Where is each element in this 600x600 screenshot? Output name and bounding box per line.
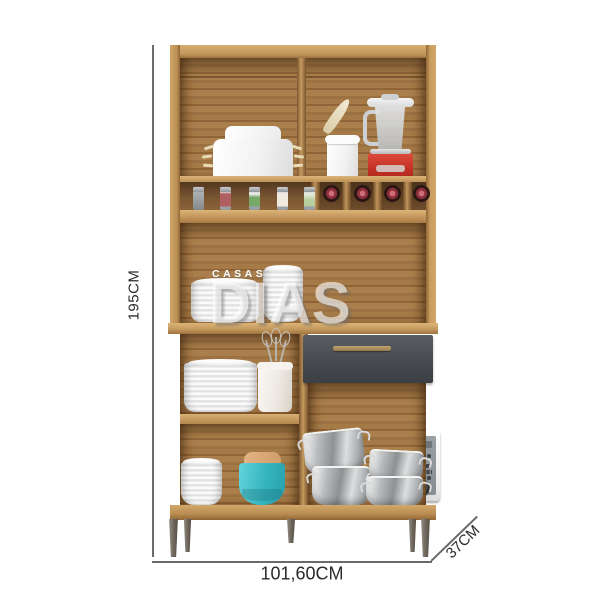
height-dimension-line	[152, 45, 154, 557]
pot-handle	[357, 430, 371, 441]
pot-handle	[359, 481, 374, 493]
wine-bottle	[413, 185, 430, 202]
spice-and-wine-row	[180, 176, 426, 223]
wooden-spoon	[321, 97, 352, 136]
blender-lid	[367, 98, 414, 107]
drawer-handle	[333, 346, 391, 351]
base-bottom-band	[170, 505, 436, 520]
steel-pot	[366, 476, 423, 506]
drawer-front	[303, 335, 433, 383]
pot-handle	[202, 154, 212, 158]
pot-handle	[294, 154, 304, 158]
wine-bottle	[384, 185, 401, 202]
upper-shelf-divider	[297, 58, 306, 176]
cabinet-leg	[183, 519, 192, 552]
spice-jar	[249, 187, 260, 210]
upper-shelf-compartment	[180, 58, 426, 176]
cabinet-leg	[408, 519, 417, 552]
wine-bottle	[323, 185, 340, 202]
wine-slot-divider	[373, 182, 382, 210]
cabinet-leg	[286, 519, 296, 543]
pot-handle	[363, 453, 377, 464]
wine-slot-divider	[403, 182, 412, 210]
microwave-button	[427, 476, 431, 480]
hutch-top-band	[170, 45, 436, 58]
base-right-compartment	[308, 383, 426, 505]
spice-jar	[277, 187, 288, 210]
dinner-plate-stack	[184, 363, 257, 412]
spice-jar	[220, 187, 231, 210]
pot-handle	[203, 164, 213, 167]
height-dimension-label: 195CM	[126, 270, 143, 321]
width-dimension-label: 101,60CM	[260, 564, 343, 585]
hutch-left-rail	[170, 45, 180, 334]
cabinet-leg	[168, 519, 179, 557]
cabinet-leg	[420, 519, 431, 557]
front-rail	[180, 210, 426, 223]
pot-handle	[305, 472, 320, 484]
spice-jar	[304, 187, 315, 210]
width-dimension-line	[152, 561, 432, 563]
teal-bowl	[239, 463, 285, 505]
utensil-jar	[258, 362, 292, 412]
product-image-kitchen-cabinet: 195CM 101,60CM 37CM	[0, 0, 600, 600]
base-left-shelf	[180, 414, 299, 424]
wine-bottle	[354, 185, 371, 202]
cup-stack	[181, 462, 222, 505]
spice-jar	[193, 187, 204, 210]
watermark-dias: DIAS	[209, 281, 352, 327]
wine-slot-divider	[342, 182, 351, 210]
